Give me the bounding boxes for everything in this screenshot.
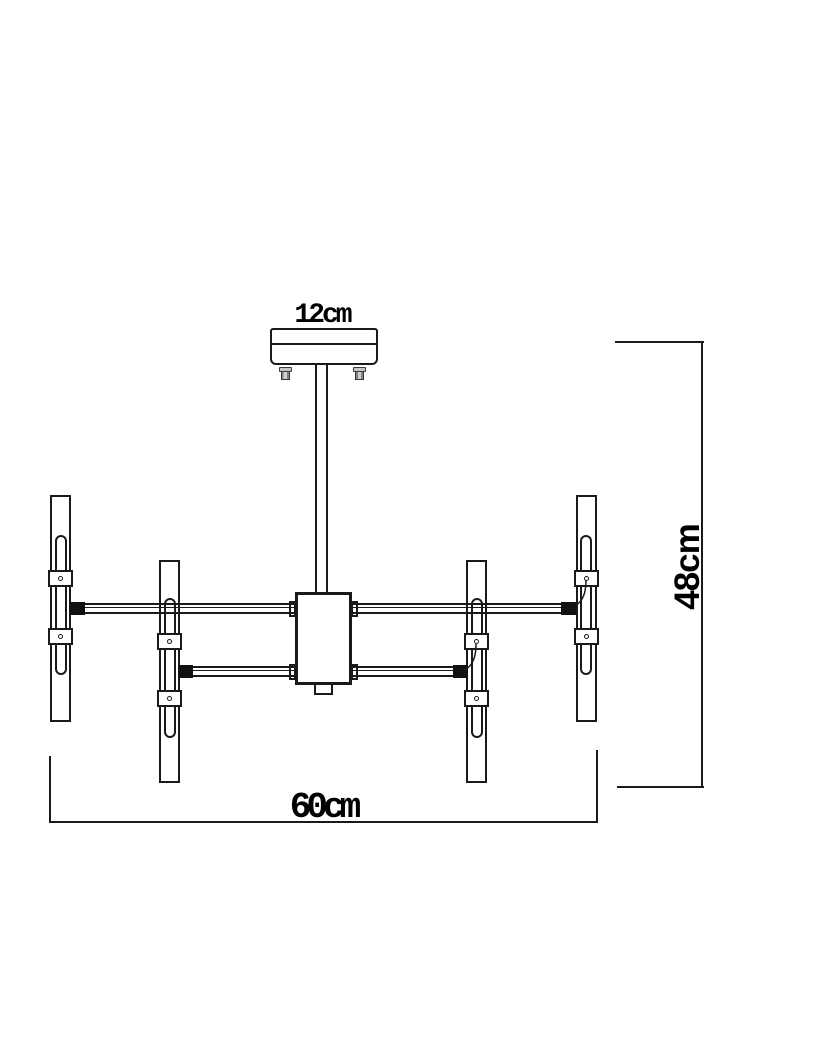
dim-label-overall-height: 48cm (668, 507, 708, 627)
canopy-screw-left (279, 367, 292, 380)
wire-curves (440, 570, 610, 690)
dim-label-canopy-width: 12cm (262, 303, 382, 329)
arm-core-line (84, 607, 295, 608)
clamp-hole (474, 696, 479, 701)
arm-lower-left (192, 666, 295, 677)
dim-extension-width-left (49, 756, 51, 823)
clamp-outer-left-top (48, 570, 73, 587)
clamp-hole (167, 639, 172, 644)
technical-drawing-canvas: 12cm (0, 0, 816, 1056)
hanging-stem (315, 365, 328, 592)
ferrule-inner-left (178, 665, 193, 678)
clamp-hole (58, 576, 63, 581)
wire-inner-right (465, 644, 476, 670)
ferrule-outer-left (70, 602, 85, 615)
clamp-hole (167, 696, 172, 701)
lamp-slot-outer-left (55, 535, 67, 675)
junction-box-bottom-tab (314, 685, 333, 695)
wire-outer-right (575, 580, 586, 606)
dim-extension-width-right (596, 750, 598, 823)
dim-extension-height-top (615, 341, 704, 343)
clamp-inner-left-top (157, 633, 182, 650)
dim-extension-height-bottom (617, 786, 704, 788)
clamp-hole (58, 634, 63, 639)
canopy-divider-line (272, 343, 376, 345)
clamp-outer-left-bottom (48, 628, 73, 645)
clamp-inner-right-bottom (464, 690, 489, 707)
central-junction-box (295, 592, 352, 685)
screw-body (355, 372, 364, 380)
arm-upper-left (84, 603, 295, 614)
ceiling-canopy (270, 328, 378, 365)
dim-label-overall-width: 60cm (243, 794, 403, 822)
screw-body (281, 372, 290, 380)
lamp-slot-inner-left (164, 598, 176, 738)
canopy-screw-right (353, 367, 366, 380)
clamp-inner-left-bottom (157, 690, 182, 707)
arm-core-line (192, 670, 295, 671)
